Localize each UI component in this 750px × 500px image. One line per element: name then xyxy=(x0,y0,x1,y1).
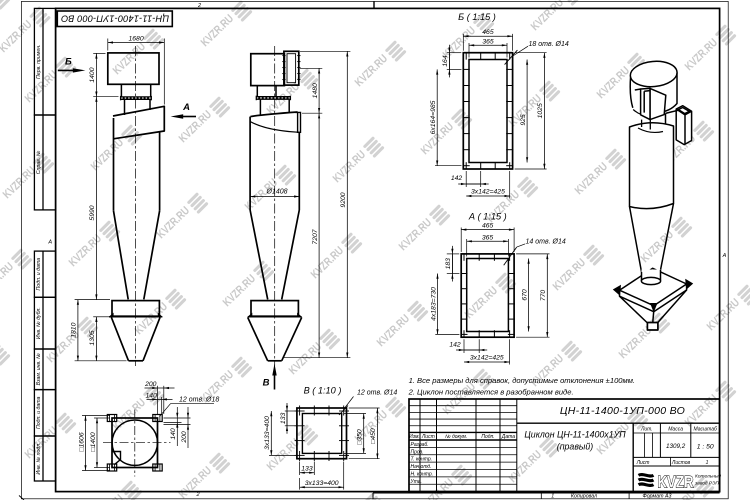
svg-text:Лист: Лист xyxy=(636,460,650,466)
svg-text:В ( 1:10 ): В ( 1:10 ) xyxy=(304,386,342,396)
svg-text:1305: 1305 xyxy=(89,330,96,345)
svg-text:Ø1408: Ø1408 xyxy=(265,189,287,196)
svg-text:Дата: Дата xyxy=(501,434,515,440)
svg-text:3х133=400: 3х133=400 xyxy=(305,480,339,487)
svg-text:7207: 7207 xyxy=(312,229,319,244)
svg-text:ЦН-11-1400-1УП-000 ВО: ЦН-11-1400-1УП-000 ВО xyxy=(61,13,169,23)
svg-text:3х142=425: 3х142=425 xyxy=(470,355,504,362)
svg-text:Масштаб: Масштаб xyxy=(694,427,718,433)
svg-text:Котельный: Котельный xyxy=(695,473,721,480)
svg-text:2: 2 xyxy=(195,492,199,498)
svg-text:Подп. и дата: Подп. и дата xyxy=(36,396,42,429)
svg-text:А: А xyxy=(722,253,727,259)
svg-text:Лит.: Лит. xyxy=(640,427,653,433)
svg-text:Н. контр.: Н. контр. xyxy=(411,471,434,477)
svg-text:465: 465 xyxy=(482,29,494,36)
svg-text:1. Все размеры для справок, до: 1. Все размеры для справок, допустимые о… xyxy=(409,376,635,385)
svg-text:Подп. и дата: Подп. и дата xyxy=(36,258,42,291)
svg-text:3х133=400: 3х133=400 xyxy=(264,416,271,450)
svg-text:200: 200 xyxy=(144,381,157,388)
svg-text:Изм.: Изм. xyxy=(409,434,420,440)
svg-text:1025: 1025 xyxy=(537,103,544,118)
svg-text:18 отв. Ø14: 18 отв. Ø14 xyxy=(529,41,569,48)
svg-text:KVZR: KVZR xyxy=(658,473,694,492)
svg-text:14 отв. Ø14: 14 отв. Ø14 xyxy=(526,238,566,245)
svg-text:Листов: Листов xyxy=(671,460,691,466)
svg-text:Пров.: Пров. xyxy=(411,449,424,455)
svg-text:Инв. № подл.: Инв. № подл. xyxy=(36,442,42,474)
svg-text:Утв.: Утв. xyxy=(411,479,422,485)
svg-text:Б ( 1:15 ): Б ( 1:15 ) xyxy=(458,12,496,22)
svg-text:9200: 9200 xyxy=(340,192,347,207)
svg-text:Справ. №: Справ. № xyxy=(36,150,42,174)
svg-text:1810: 1810 xyxy=(71,322,78,337)
svg-text:Подп.: Подп. xyxy=(481,434,494,440)
svg-text:1400: 1400 xyxy=(89,67,96,82)
svg-text:(правый): (правый) xyxy=(557,442,594,452)
svg-text:Копировал: Копировал xyxy=(571,494,597,500)
svg-text:2: 2 xyxy=(197,3,201,9)
svg-text:465: 465 xyxy=(482,223,494,230)
svg-text:365: 365 xyxy=(482,234,494,241)
svg-text:164: 164 xyxy=(442,55,449,67)
svg-text:5990: 5990 xyxy=(89,205,96,220)
svg-text:Инв. № дубл.: Инв. № дубл. xyxy=(36,307,42,339)
svg-text:3х142=425: 3х142=425 xyxy=(471,189,505,196)
svg-text:1480: 1480 xyxy=(312,83,319,98)
svg-text:1680: 1680 xyxy=(128,35,143,42)
svg-text:□450: □450 xyxy=(370,428,377,444)
svg-text:1 : 50: 1 : 50 xyxy=(697,444,714,451)
svg-text:Т. контр.: Т. контр. xyxy=(411,457,433,463)
svg-text:В: В xyxy=(263,378,270,389)
svg-text:Перв. примен.: Перв. примен. xyxy=(36,44,42,78)
svg-text:Формат А3: Формат А3 xyxy=(643,494,672,500)
svg-text:6х164=985: 6х164=985 xyxy=(430,100,437,134)
svg-text:№ докум.: № докум. xyxy=(445,434,467,440)
svg-text:Б: Б xyxy=(65,57,72,68)
svg-text:133: 133 xyxy=(280,413,287,425)
svg-text:200: 200 xyxy=(181,431,188,444)
svg-text:140: 140 xyxy=(146,392,158,399)
svg-text:Лист: Лист xyxy=(421,434,435,440)
svg-text:А: А xyxy=(182,102,190,113)
svg-text:142: 142 xyxy=(451,175,463,182)
svg-text:12 отв. Ø18: 12 отв. Ø18 xyxy=(179,397,219,404)
svg-text:А: А xyxy=(47,240,52,246)
svg-text:Масса: Масса xyxy=(668,427,683,433)
svg-text:□350: □350 xyxy=(357,429,364,445)
svg-text:Взам. инв. №: Взам. инв. № xyxy=(36,353,42,385)
svg-text:ЦН-11-1400-1УП-000 ВО: ЦН-11-1400-1УП-000 ВО xyxy=(560,405,685,417)
svg-text:Разраб.: Разраб. xyxy=(411,442,429,448)
svg-text:140: 140 xyxy=(170,428,177,440)
svg-text:Нач.отд.: Нач.отд. xyxy=(411,464,432,470)
svg-text:1: 1 xyxy=(706,460,709,466)
svg-text:завод РЭП: завод РЭП xyxy=(694,481,719,487)
svg-text:770: 770 xyxy=(540,290,547,302)
svg-text:1: 1 xyxy=(551,494,554,500)
svg-text:4х183=730: 4х183=730 xyxy=(430,287,437,321)
svg-text:670: 670 xyxy=(521,289,528,301)
svg-text:□1400: □1400 xyxy=(90,432,97,451)
svg-text:133: 133 xyxy=(301,466,313,473)
svg-text:183: 183 xyxy=(445,258,452,270)
svg-text:А ( 1:15 ): А ( 1:15 ) xyxy=(468,212,507,222)
svg-text:□1606: □1606 xyxy=(78,432,85,451)
svg-text:142: 142 xyxy=(449,341,461,348)
svg-text:2. Циклон поставляется в разоб: 2. Циклон поставляется в разобранном вид… xyxy=(408,387,574,396)
svg-text:1309,2: 1309,2 xyxy=(666,443,686,450)
svg-text:12 отв. Ø14: 12 отв. Ø14 xyxy=(357,390,397,397)
svg-text:925: 925 xyxy=(520,114,527,126)
svg-text:Циклон ЦН-11-1400х1УП: Циклон ЦН-11-1400х1УП xyxy=(524,430,626,440)
svg-text:365: 365 xyxy=(482,38,494,45)
